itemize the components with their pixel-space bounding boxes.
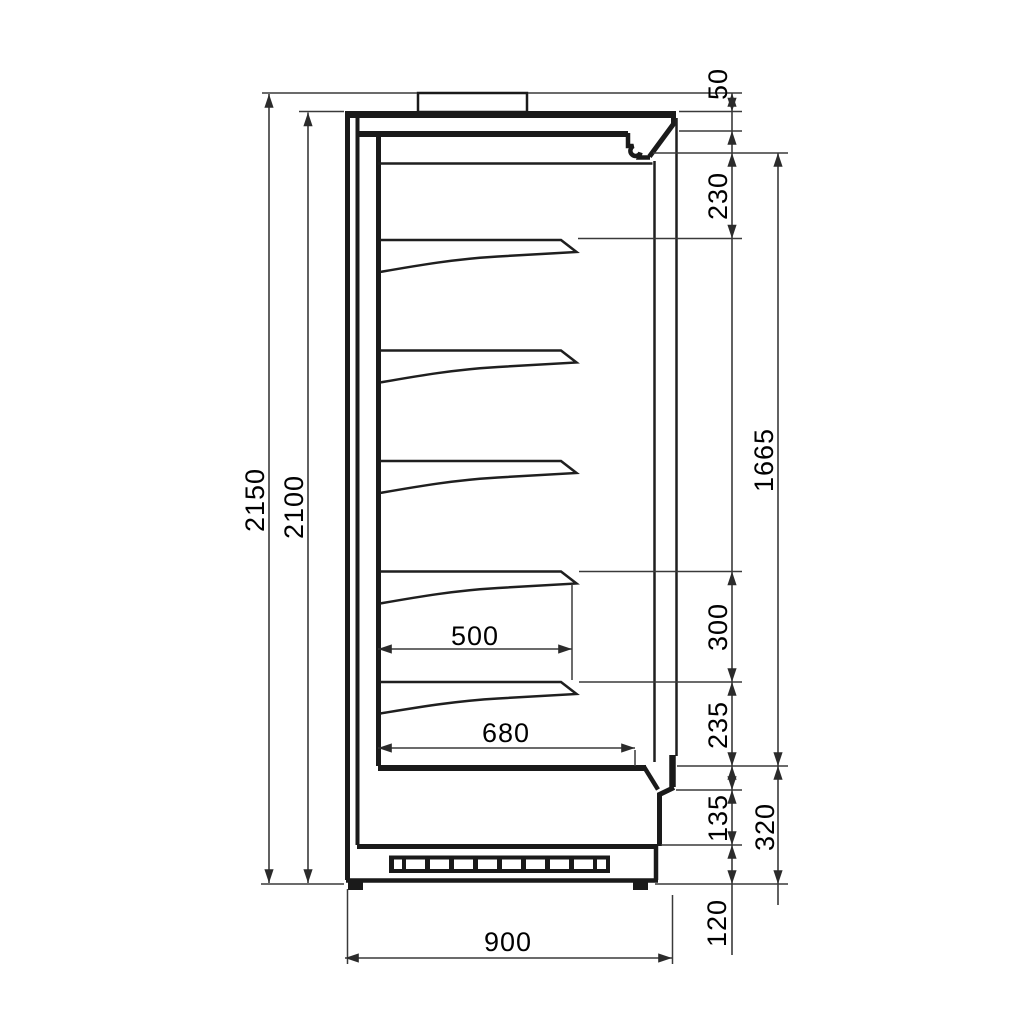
dim-label-opening-height: 1665 <box>749 428 779 492</box>
dim-label-deck-depth: 680 <box>482 718 530 748</box>
dimension-annotations: 2150 2100 50 230 1665 300 235 135 320 12… <box>240 68 788 964</box>
shelf-5 <box>380 682 577 714</box>
cabinet-technical-drawing: 2150 2100 50 230 1665 300 235 135 320 12… <box>0 0 1024 1024</box>
dim-label-sill-height: 135 <box>703 794 733 842</box>
dimension-labels: 2150 2100 50 230 1665 300 235 135 320 12… <box>240 68 780 957</box>
air-outlet-hook <box>628 133 650 158</box>
dim-label-overall-depth: 900 <box>484 927 532 957</box>
dim-label-top-block: 50 <box>703 68 733 100</box>
foot-left <box>348 881 363 890</box>
shelf-3 <box>380 461 577 493</box>
canopy-front-edge <box>650 118 674 157</box>
shelf-4 <box>380 572 577 604</box>
dim-label-shelf-pitch: 300 <box>703 603 733 651</box>
dim-label-case-height: 2100 <box>279 475 309 539</box>
front-step <box>660 788 675 847</box>
foot-right <box>633 881 648 890</box>
top-spacer-block <box>418 93 527 112</box>
drawing-canvas: 2150 2100 50 230 1665 300 235 135 320 12… <box>0 0 1024 1024</box>
ventilation-grille <box>389 856 610 874</box>
dim-label-overall-height: 2150 <box>240 468 270 532</box>
shelf-2 <box>380 351 577 383</box>
deck-front-nose <box>644 766 659 790</box>
shelf-1 <box>380 240 577 272</box>
cabinet-structure <box>345 93 677 890</box>
dim-label-last-shelf-to-deck: 235 <box>703 701 733 749</box>
dim-label-shelf-depth: 500 <box>451 621 499 651</box>
dim-label-canopy-to-first-shelf: 230 <box>703 172 733 220</box>
dim-label-base-height: 320 <box>750 803 780 851</box>
dim-label-plinth-height: 120 <box>702 899 732 947</box>
